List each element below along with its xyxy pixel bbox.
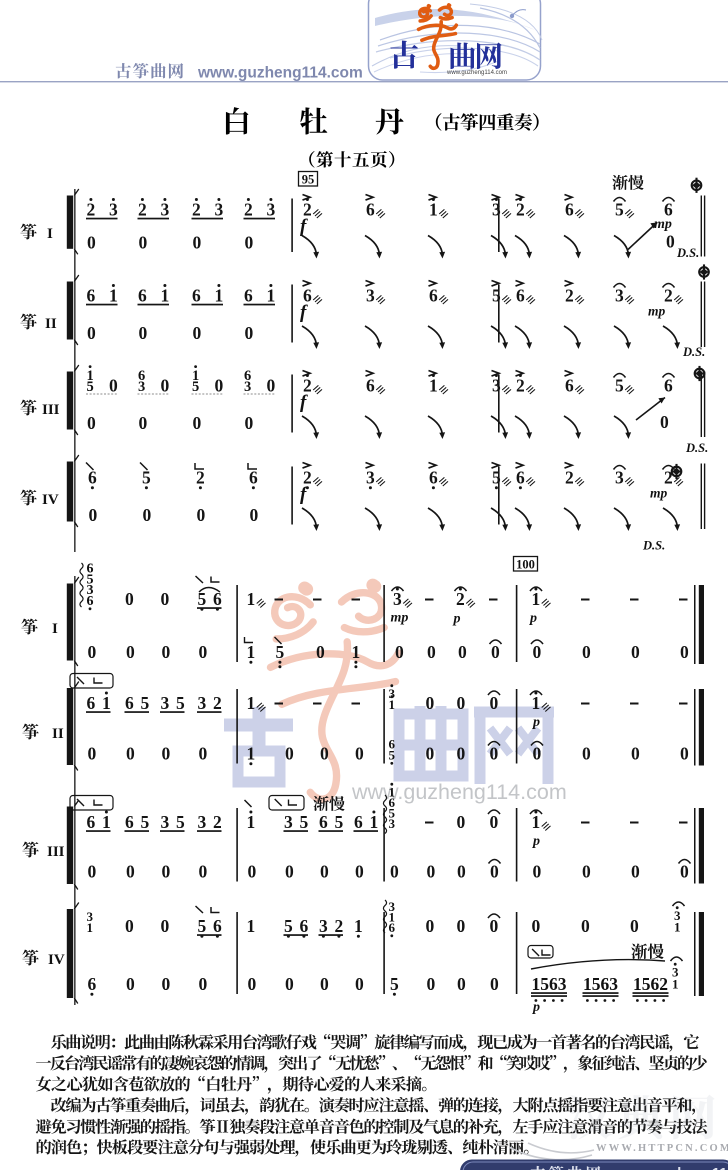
svg-text:0: 0 — [88, 744, 97, 764]
svg-text:0: 0 — [161, 916, 170, 936]
svg-text:0: 0 — [89, 505, 98, 525]
svg-text:5: 5 — [615, 200, 624, 220]
svg-text:D.S.: D.S. — [642, 539, 665, 553]
svg-text:6: 6 — [87, 594, 94, 609]
svg-text:5: 5 — [389, 748, 396, 763]
svg-text:5: 5 — [142, 468, 151, 488]
svg-text:2: 2 — [87, 200, 96, 220]
svg-text:3: 3 — [215, 200, 224, 220]
svg-text:3: 3 — [615, 468, 624, 488]
svg-text:6: 6 — [429, 468, 438, 488]
svg-text:1: 1 — [109, 286, 118, 306]
svg-text:0: 0 — [532, 916, 541, 936]
svg-text:2: 2 — [213, 693, 222, 713]
svg-text:p: p — [532, 1000, 540, 1015]
svg-text:0: 0 — [355, 744, 364, 764]
svg-text:mp: mp — [648, 304, 666, 319]
svg-text:2: 2 — [565, 286, 574, 306]
svg-text:3: 3 — [492, 376, 501, 396]
svg-text:6: 6 — [87, 286, 96, 306]
svg-text:3: 3 — [319, 916, 328, 936]
svg-text:1: 1 — [532, 589, 541, 609]
svg-text:3: 3 — [615, 286, 624, 306]
svg-text:1: 1 — [247, 812, 256, 832]
svg-text:2: 2 — [516, 376, 525, 396]
svg-text:0: 0 — [161, 589, 170, 609]
svg-text:0: 0 — [215, 376, 224, 396]
svg-text:www.guzheng114.com: www.guzheng114.com — [197, 65, 363, 82]
svg-text:1563: 1563 — [532, 974, 567, 994]
svg-text:0: 0 — [126, 862, 135, 882]
svg-text:0: 0 — [88, 642, 97, 662]
svg-text:3: 3 — [389, 816, 396, 831]
svg-text:0: 0 — [199, 862, 208, 882]
svg-text:1: 1 — [354, 916, 363, 936]
svg-text:1: 1 — [532, 693, 541, 713]
svg-text:III: III — [42, 402, 60, 418]
svg-text:0: 0 — [199, 744, 208, 764]
svg-text:0: 0 — [162, 642, 171, 662]
svg-text:95: 95 — [302, 173, 315, 187]
svg-text:5: 5 — [615, 376, 624, 396]
svg-text:0: 0 — [426, 916, 435, 936]
svg-text:0: 0 — [631, 642, 640, 662]
svg-text:3: 3 — [161, 812, 170, 832]
svg-text:2: 2 — [196, 468, 205, 488]
svg-text:I: I — [52, 621, 58, 637]
svg-text:p: p — [529, 611, 537, 626]
svg-text:1: 1 — [674, 920, 681, 935]
svg-text:0: 0 — [245, 323, 254, 343]
svg-text:6: 6 — [88, 468, 97, 488]
svg-text:0: 0 — [125, 916, 134, 936]
svg-text:2: 2 — [516, 200, 525, 220]
svg-text:3: 3 — [267, 200, 276, 220]
svg-text:5: 5 — [300, 812, 309, 832]
svg-text:1: 1 — [87, 920, 94, 935]
svg-text:0: 0 — [457, 862, 466, 882]
svg-text:0: 0 — [87, 233, 96, 253]
svg-text:1: 1 — [247, 916, 256, 936]
svg-text:1563: 1563 — [583, 974, 618, 994]
svg-text:2: 2 — [138, 200, 147, 220]
svg-text:0: 0 — [533, 862, 542, 882]
svg-text:1: 1 — [352, 642, 361, 662]
svg-text:D.S.: D.S. — [685, 441, 708, 455]
svg-text:0: 0 — [199, 642, 208, 662]
svg-text:III: III — [47, 844, 65, 860]
svg-text:5: 5 — [276, 642, 285, 662]
svg-text:1: 1 — [267, 286, 276, 306]
svg-text:0: 0 — [457, 916, 466, 936]
svg-text:0: 0 — [250, 505, 259, 525]
svg-text:6: 6 — [138, 286, 147, 306]
svg-text:6: 6 — [244, 286, 253, 306]
svg-text:www.guzheng114.com: www.guzheng114.com — [351, 780, 567, 804]
svg-text:5: 5 — [87, 379, 94, 395]
svg-text:0: 0 — [491, 642, 500, 662]
svg-text:0: 0 — [193, 233, 202, 253]
svg-text:0: 0 — [680, 642, 689, 662]
svg-text:0: 0 — [457, 974, 466, 994]
svg-text:5: 5 — [335, 812, 344, 832]
svg-text:2: 2 — [335, 916, 344, 936]
svg-text:6: 6 — [300, 916, 309, 936]
svg-text:3: 3 — [244, 379, 251, 395]
svg-text:0: 0 — [660, 412, 669, 432]
svg-text:6: 6 — [87, 812, 96, 832]
svg-text:6: 6 — [389, 920, 396, 935]
svg-text:www.guzheng114...: www.guzheng114... — [614, 1166, 728, 1170]
svg-text:5: 5 — [390, 974, 399, 994]
svg-text:6: 6 — [213, 916, 222, 936]
svg-text:0: 0 — [267, 376, 276, 396]
svg-text:0: 0 — [139, 413, 148, 433]
svg-text:3: 3 — [161, 200, 170, 220]
svg-text:6: 6 — [366, 200, 375, 220]
svg-text:0: 0 — [490, 916, 499, 936]
svg-text:6: 6 — [249, 468, 258, 488]
svg-text:0: 0 — [427, 862, 436, 882]
svg-text:0: 0 — [355, 974, 364, 994]
svg-text:1: 1 — [429, 200, 438, 220]
svg-text:0: 0 — [193, 323, 202, 343]
svg-text:2: 2 — [192, 200, 201, 220]
svg-text:3: 3 — [198, 812, 207, 832]
svg-text:0: 0 — [582, 862, 591, 882]
svg-text:6: 6 — [664, 376, 673, 396]
svg-text:www.guzheng114.com: www.guzheng114.com — [446, 70, 507, 76]
svg-text:3: 3 — [366, 468, 375, 488]
svg-text:0: 0 — [320, 974, 329, 994]
svg-text:1: 1 — [389, 697, 396, 712]
svg-text:5: 5 — [198, 916, 207, 936]
svg-text:0: 0 — [631, 862, 640, 882]
svg-text:0: 0 — [126, 974, 135, 994]
svg-text:0: 0 — [161, 376, 170, 396]
svg-text:0: 0 — [193, 413, 202, 433]
svg-text:0: 0 — [458, 642, 467, 662]
svg-text:3: 3 — [161, 693, 170, 713]
svg-text:3: 3 — [366, 286, 375, 306]
svg-text:6: 6 — [192, 286, 201, 306]
svg-text:6: 6 — [429, 286, 438, 306]
svg-text:0: 0 — [248, 974, 257, 994]
svg-text:mp: mp — [391, 611, 409, 626]
svg-text:0: 0 — [427, 974, 436, 994]
svg-text:0: 0 — [87, 413, 96, 433]
svg-text:6: 6 — [125, 693, 134, 713]
svg-text:5: 5 — [284, 916, 293, 936]
svg-text:p: p — [453, 612, 461, 627]
svg-text:6: 6 — [125, 812, 134, 832]
svg-text:0: 0 — [87, 323, 96, 343]
svg-text:5: 5 — [192, 379, 199, 395]
svg-text:0: 0 — [126, 642, 135, 662]
svg-text:5: 5 — [176, 693, 185, 713]
svg-text:1: 1 — [215, 286, 224, 306]
svg-text:100: 100 — [516, 558, 535, 572]
svg-text:1: 1 — [247, 693, 256, 713]
svg-text:1: 1 — [247, 589, 256, 609]
svg-text:p: p — [532, 715, 540, 730]
svg-text:0: 0 — [457, 744, 466, 764]
svg-text:0: 0 — [126, 744, 135, 764]
svg-text:0: 0 — [197, 505, 206, 525]
svg-text:0: 0 — [582, 642, 591, 662]
svg-text:0: 0 — [390, 862, 399, 882]
svg-text:0: 0 — [162, 862, 171, 882]
svg-text:0: 0 — [680, 862, 689, 882]
svg-text:3: 3 — [284, 812, 293, 832]
svg-text:0: 0 — [581, 916, 590, 936]
svg-text:0: 0 — [316, 642, 325, 662]
svg-text:0: 0 — [490, 812, 499, 832]
svg-text:6: 6 — [354, 812, 363, 832]
svg-text:0: 0 — [490, 693, 499, 713]
svg-text:2: 2 — [565, 468, 574, 488]
svg-text:1: 1 — [102, 812, 111, 832]
svg-text:0: 0 — [162, 744, 171, 764]
svg-text:0: 0 — [245, 233, 254, 253]
svg-text:0: 0 — [427, 642, 436, 662]
svg-text:1: 1 — [429, 376, 438, 396]
svg-text:mp: mp — [654, 217, 672, 232]
svg-text:6: 6 — [88, 974, 97, 994]
svg-text:0: 0 — [285, 862, 294, 882]
svg-text:0: 0 — [320, 744, 329, 764]
svg-text:2: 2 — [244, 200, 253, 220]
svg-text:II: II — [45, 316, 57, 332]
svg-text:6: 6 — [516, 468, 525, 488]
svg-text:6: 6 — [366, 376, 375, 396]
svg-text:1: 1 — [247, 642, 256, 662]
svg-text:0: 0 — [355, 862, 364, 882]
svg-text:5: 5 — [198, 589, 207, 609]
svg-text:0: 0 — [125, 589, 134, 609]
svg-text:0: 0 — [490, 744, 499, 764]
svg-text:IV: IV — [48, 952, 65, 968]
svg-text:3: 3 — [492, 200, 501, 220]
svg-text:0: 0 — [143, 505, 152, 525]
svg-text:0: 0 — [490, 862, 499, 882]
svg-text:0: 0 — [582, 744, 591, 764]
svg-text:3: 3 — [198, 693, 207, 713]
svg-text:0: 0 — [666, 232, 675, 252]
svg-text:0: 0 — [533, 642, 542, 662]
svg-text:2: 2 — [664, 286, 673, 306]
svg-text:0: 0 — [199, 974, 208, 994]
svg-text:0: 0 — [245, 413, 254, 433]
svg-text:6: 6 — [565, 376, 574, 396]
svg-text:0: 0 — [490, 974, 499, 994]
svg-text:0: 0 — [109, 376, 118, 396]
svg-text:0: 0 — [320, 862, 329, 882]
svg-text:1: 1 — [532, 812, 541, 832]
svg-text:0: 0 — [248, 862, 257, 882]
svg-text:p: p — [532, 834, 540, 849]
svg-text:5: 5 — [492, 286, 501, 306]
svg-text:0: 0 — [631, 744, 640, 764]
svg-text:0: 0 — [457, 812, 466, 832]
svg-text:0: 0 — [680, 744, 689, 764]
svg-text:3: 3 — [393, 589, 402, 609]
svg-text:6: 6 — [516, 286, 525, 306]
svg-text:1: 1 — [672, 977, 679, 992]
svg-text:1: 1 — [161, 286, 170, 306]
svg-text:0: 0 — [426, 693, 435, 713]
svg-text:1: 1 — [247, 744, 256, 764]
svg-text:0: 0 — [285, 974, 294, 994]
svg-text:5: 5 — [141, 693, 150, 713]
svg-text:0: 0 — [139, 233, 148, 253]
svg-text:1: 1 — [370, 812, 379, 832]
svg-text:0: 0 — [285, 744, 294, 764]
svg-text:0: 0 — [630, 916, 639, 936]
svg-text:5: 5 — [176, 812, 185, 832]
svg-text:0: 0 — [395, 642, 404, 662]
svg-text:0: 0 — [426, 744, 435, 764]
svg-text:I: I — [47, 226, 53, 242]
svg-text:WWW.HTTPCN.COM: WWW.HTTPCN.COM — [596, 1143, 728, 1154]
svg-text:5: 5 — [141, 812, 150, 832]
svg-text:mp: mp — [650, 486, 668, 501]
svg-text:II: II — [52, 726, 64, 742]
svg-text:2: 2 — [456, 589, 465, 609]
svg-text:3: 3 — [138, 379, 145, 395]
svg-text:6: 6 — [565, 200, 574, 220]
svg-text:IV: IV — [42, 492, 59, 508]
svg-text:6: 6 — [319, 812, 328, 832]
svg-text:0: 0 — [139, 323, 148, 343]
svg-text:1562: 1562 — [633, 974, 668, 994]
svg-text:D.S.: D.S. — [676, 246, 699, 260]
svg-text:6: 6 — [87, 693, 96, 713]
svg-text:6: 6 — [213, 589, 222, 609]
svg-text:0: 0 — [457, 693, 466, 713]
svg-text:0: 0 — [162, 974, 171, 994]
svg-text:0: 0 — [88, 862, 97, 882]
svg-text:0: 0 — [533, 744, 542, 764]
svg-text:1: 1 — [102, 693, 111, 713]
svg-text:3: 3 — [109, 200, 118, 220]
svg-text:5: 5 — [492, 468, 501, 488]
svg-text:D.S.: D.S. — [682, 345, 705, 359]
svg-text:2: 2 — [213, 812, 222, 832]
